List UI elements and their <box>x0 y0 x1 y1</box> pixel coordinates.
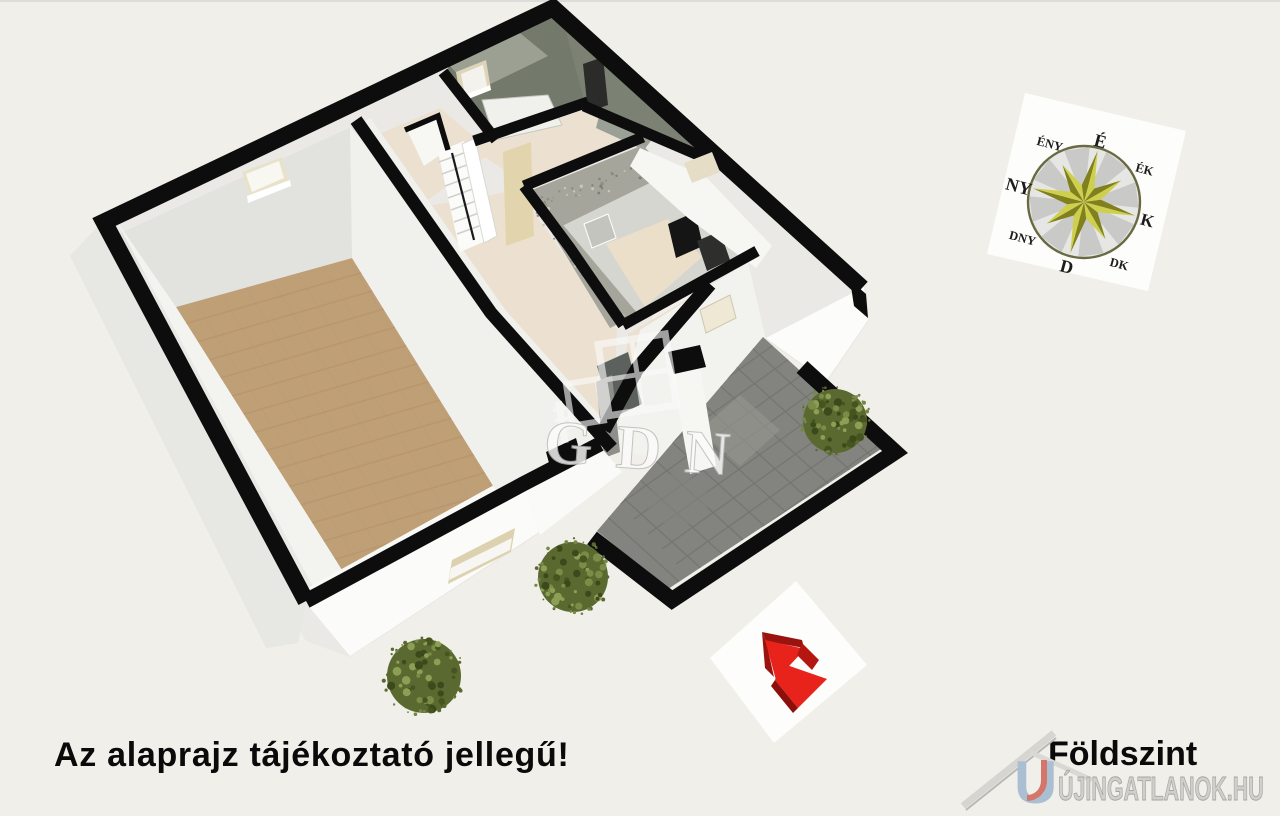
svg-text:U: U <box>1014 749 1057 816</box>
svg-text:ÚJINGATLANOK.HU: ÚJINGATLANOK.HU <box>1058 770 1264 807</box>
svg-text:Az alaprajz tájékoztató jelleg: Az alaprajz tájékoztató jellegű! <box>54 736 570 774</box>
svg-text:Földszint: Földszint <box>1048 735 1197 773</box>
